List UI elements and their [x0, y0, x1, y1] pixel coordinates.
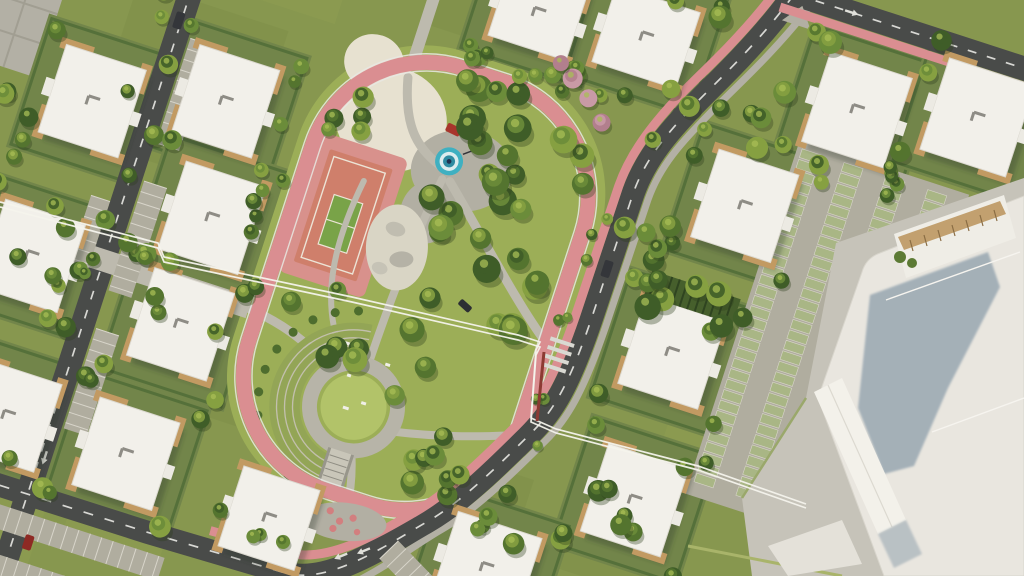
- masterplan-render: [0, 0, 1024, 576]
- aerial-render-stage: [0, 0, 1024, 576]
